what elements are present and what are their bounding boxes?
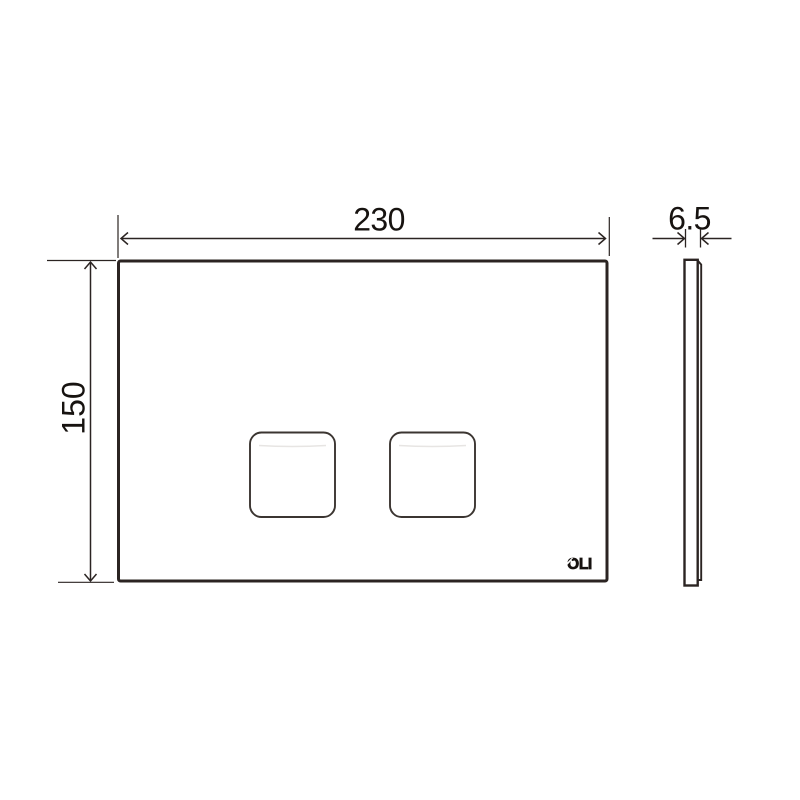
svg-text:150: 150 (56, 381, 92, 434)
svg-text:230: 230 (353, 202, 405, 238)
svg-text:OLI: OLI (567, 556, 592, 573)
svg-text:6.5: 6.5 (668, 201, 711, 237)
